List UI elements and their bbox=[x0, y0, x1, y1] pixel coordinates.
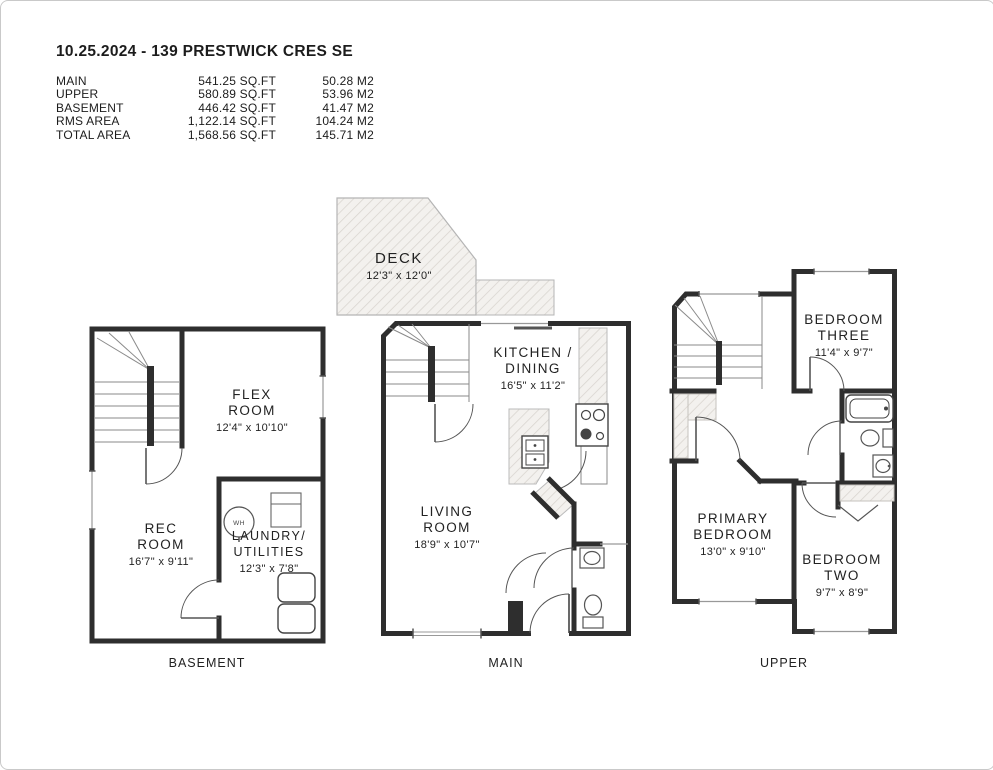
area-row-m2: 50.28 M2 bbox=[276, 75, 374, 88]
door-arc bbox=[810, 357, 844, 391]
bifold-door bbox=[838, 505, 878, 521]
flex-room-label: FLEX ROOM 12'4" x 10'10" bbox=[216, 387, 288, 434]
stove-icon bbox=[576, 404, 608, 446]
area-row-sqft: 541.25 SQ.FT bbox=[174, 75, 276, 88]
toilet-icon bbox=[583, 595, 603, 628]
kitchen-label: KITCHEN / DINING 16'5" x 11'2" bbox=[493, 345, 572, 392]
area-row-m2: 53.96 M2 bbox=[276, 88, 374, 101]
front-door-arc bbox=[530, 594, 569, 639]
main-floor-label: MAIN bbox=[406, 656, 606, 670]
svg-text:WH: WH bbox=[233, 520, 245, 527]
primary-bedroom-label: PRIMARY BEDROOM 13'0" x 9'10" bbox=[693, 511, 773, 558]
washer-dryer-icon bbox=[278, 573, 315, 633]
pantry-walls bbox=[532, 478, 574, 518]
bedroom-two-label: BEDROOM TWO 9'7" x 8'9" bbox=[802, 552, 882, 599]
door-arc bbox=[696, 417, 740, 461]
area-summary-table: MAIN 541.25 SQ.FT 50.28 M2 UPPER 580.89 … bbox=[56, 75, 374, 142]
area-row-label: BASEMENT bbox=[56, 102, 174, 115]
floorplan-page: 10.25.2024 - 139 PRESTWICK CRES SE MAIN … bbox=[0, 0, 993, 770]
area-row-label: MAIN bbox=[56, 75, 174, 88]
door-arc bbox=[181, 580, 219, 618]
wall-stub bbox=[508, 601, 523, 633]
patio-door bbox=[481, 318, 552, 329]
upper-floor-label: UPPER bbox=[684, 656, 884, 670]
area-row-sqft: 1,122.14 SQ.FT bbox=[174, 115, 276, 128]
basement-stairs bbox=[95, 332, 179, 446]
laundry-room-label: LAUNDRY/ UTILITIES 12'3" x 7'8" bbox=[232, 528, 306, 575]
living-room-label: LIVING ROOM 18'9" x 10'7" bbox=[414, 504, 480, 551]
bedroom-three-label: BEDROOM THREE 11'4" x 9'7" bbox=[804, 312, 884, 359]
area-row-m2: 104.24 M2 bbox=[276, 115, 374, 128]
area-row-m2: 145.71 M2 bbox=[276, 129, 374, 142]
area-row-label: TOTAL AREA bbox=[56, 129, 174, 142]
bathroom-sink-icon bbox=[873, 455, 893, 477]
window bbox=[413, 628, 481, 639]
door-arc bbox=[802, 483, 836, 517]
door-arc bbox=[146, 448, 182, 484]
door-arc bbox=[534, 548, 574, 588]
furnace-icon bbox=[271, 493, 301, 527]
area-row-sqft: 1,568.56 SQ.FT bbox=[174, 129, 276, 142]
rec-room-label: REC ROOM 16'7" x 9'11" bbox=[129, 521, 194, 568]
area-row-label: UPPER bbox=[56, 88, 174, 101]
area-row-m2: 41.47 M2 bbox=[276, 102, 374, 115]
upper-stairs bbox=[674, 296, 762, 389]
door-arc bbox=[435, 404, 473, 442]
deck-label: DECK 12'3" x 12'0" bbox=[366, 250, 432, 282]
bathtub-icon bbox=[846, 395, 893, 422]
area-row-sqft: 446.42 SQ.FT bbox=[174, 102, 276, 115]
sink-icon bbox=[522, 436, 548, 468]
page-title: 10.25.2024 - 139 PRESTWICK CRES SE bbox=[56, 43, 353, 61]
main-stairs bbox=[386, 324, 469, 402]
area-row-label: RMS AREA bbox=[56, 115, 174, 128]
area-row-sqft: 580.89 SQ.FT bbox=[174, 88, 276, 101]
bathroom-sink-icon bbox=[580, 548, 604, 568]
toilet-icon bbox=[861, 429, 893, 447]
basement-floor-label: BASEMENT bbox=[107, 656, 307, 670]
floorplan-basement: WH bbox=[89, 326, 326, 644]
door-arc bbox=[808, 421, 842, 455]
